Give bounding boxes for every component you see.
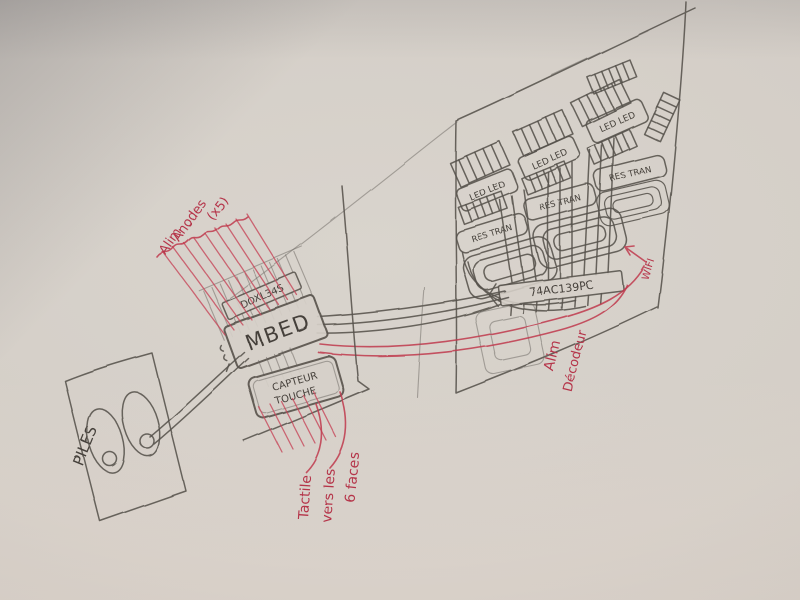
annotation-alim-decodeur-line1: Alim [542,339,565,373]
battery-box: PILES [65,352,248,521]
res-tran-box-1: RES TRAN [454,212,529,254]
battery-wire [150,352,248,444]
led-strip-5 [644,92,680,141]
battery-cell-1 [81,405,132,478]
annotation-tactile-line3: 6 faces [342,452,363,504]
res-tran-label: RES TRAN [609,164,652,184]
annotation-alim-anodes-line3: (x5) [204,194,232,224]
mbed-pin-marks [218,345,232,371]
led-strip-4 [587,60,636,94]
wifi-arrow-icon [625,246,646,262]
annotation-tactile-line1: Tactile [295,474,314,520]
sketch-svg: LED LED LED LED LED LED RES TRAN RES TRA… [0,0,800,600]
touch-sensor-box: CAPTEUR TOUCHE [247,354,345,419]
decoder-chip: 74AC139PC [488,269,625,317]
led-strip-8 [587,129,636,164]
wire-nest-3 [595,178,671,227]
annotation-alim-decodeur-line2: Décodeur [561,328,591,393]
annotation-tactile-line2: vers les [319,468,339,523]
battery-cell-2 [116,388,167,461]
photo-of-sketch: LED LED LED LED LED LED RES TRAN RES TRA… [0,0,800,600]
annotation-wifi: WIFI [640,257,657,281]
annotation-alim-anodes-line2: Anodes [170,197,210,245]
